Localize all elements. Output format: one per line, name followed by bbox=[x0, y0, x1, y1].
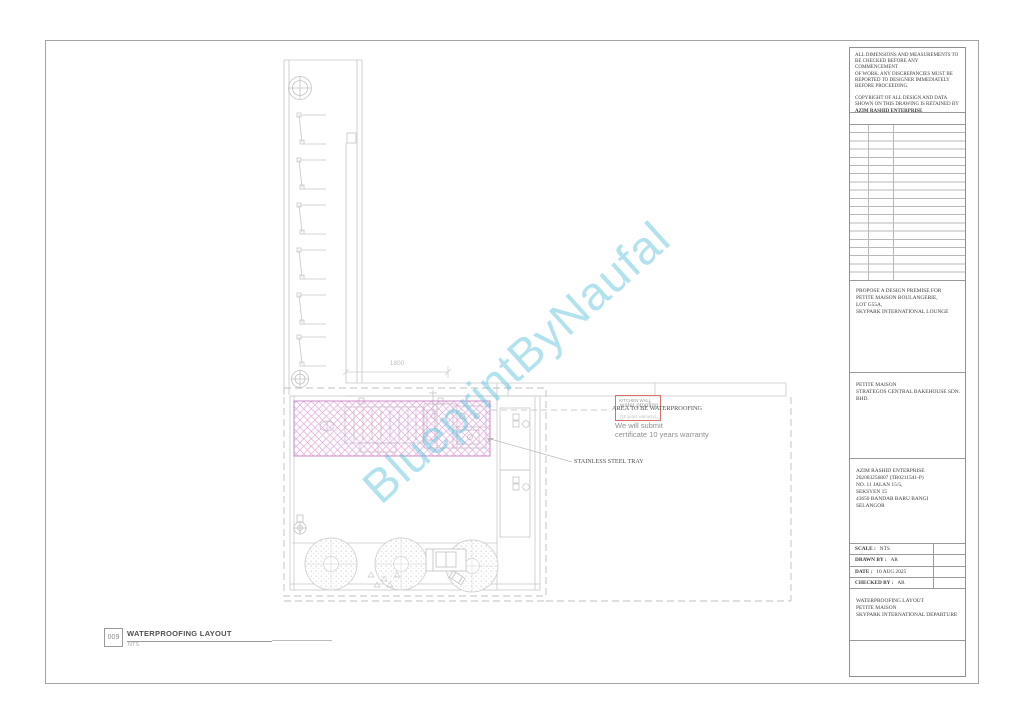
drawing-scale: NTS bbox=[128, 642, 139, 648]
client-name: PETITE MAISON STRATEGOS CENTRAL BAKEHOUS… bbox=[850, 373, 965, 459]
checked-by-row: CHECKED BY : AR bbox=[850, 578, 965, 589]
warranty-note: We will submit certificate 10 years warr… bbox=[615, 421, 709, 439]
floor-trap-symbols bbox=[513, 414, 529, 490]
stainless-steel-tray-label: STAINLESS STEEL TRAY bbox=[574, 458, 644, 465]
empty-cell bbox=[850, 641, 965, 677]
corridor-walls bbox=[284, 60, 362, 395]
revision-header-row bbox=[850, 113, 965, 125]
dimension-label: 1800 bbox=[346, 360, 448, 367]
fan-symbols bbox=[305, 538, 498, 592]
scale-value: NTS bbox=[880, 546, 890, 552]
checked-by-value: AR bbox=[897, 580, 904, 586]
scale-right-cell bbox=[933, 544, 965, 554]
date-right-cell bbox=[933, 567, 965, 577]
area-to-be-waterproofing-label: AREA TO BE WATERPROOFING bbox=[612, 405, 702, 412]
drawn-by-row: DRAWN BY : AR bbox=[850, 555, 965, 566]
scale-label: SCALE : bbox=[855, 546, 876, 552]
drawing-info-fields: SCALE : NTS DRAWN BY : AR DATE : 10 AUG … bbox=[850, 544, 965, 589]
floor-drain-symbol bbox=[293, 515, 307, 535]
drawing-title-underline bbox=[272, 640, 332, 641]
general-notes: ALL DIMENSIONS AND MEASUREMENTS TO BE CH… bbox=[850, 48, 965, 113]
notes-text: ALL DIMENSIONS AND MEASUREMENTS TO BE CH… bbox=[855, 53, 961, 90]
company-address: AZIM RASHID ENTERPRISE 202003256807 (TR0… bbox=[850, 459, 965, 544]
drawn-by-label: DRAWN BY : bbox=[855, 557, 887, 563]
drawing-sheet: BlueprintByNaufal 1800 KITCHEN WALL wate… bbox=[0, 0, 1024, 724]
sheet-title: WATERPROOFING LAYOUT PETITE MAISON SKYPA… bbox=[850, 589, 965, 641]
project-description: PROPOSE A DESIGN PREMISE FOR PETITE MAIS… bbox=[850, 281, 965, 373]
column-symbol-top bbox=[289, 77, 312, 100]
drawing-number: 009 bbox=[104, 628, 123, 647]
drawing-title: WATERPROOFING LAYOUT bbox=[127, 629, 272, 642]
copyright-text: COPYRIGHT OF ALL DESIGN AND DATA SHOWN O… bbox=[855, 96, 961, 108]
warranty-small-label: (10 years warranty) bbox=[620, 414, 656, 419]
date-label: DATE : bbox=[855, 569, 872, 575]
leader-lines bbox=[487, 410, 610, 462]
dimension-line bbox=[343, 366, 451, 378]
corridor-fixtures bbox=[297, 113, 326, 366]
date-value: 10 AUG 2025 bbox=[876, 569, 906, 575]
checked-by-label: CHECKED BY : bbox=[855, 580, 893, 586]
drawn-by-right-cell bbox=[933, 555, 965, 565]
column-symbol-bottom bbox=[291, 370, 309, 388]
title-block: ALL DIMENSIONS AND MEASUREMENTS TO BE CH… bbox=[849, 47, 966, 677]
top-wall-band bbox=[346, 383, 786, 396]
checked-by-right-cell bbox=[933, 578, 965, 588]
revision-table bbox=[850, 125, 965, 281]
scale-row: SCALE : NTS bbox=[850, 544, 965, 555]
date-row: DATE : 10 AUG 2025 bbox=[850, 567, 965, 578]
drawn-by-value: AR bbox=[891, 557, 898, 563]
counter-equipment bbox=[426, 549, 466, 585]
